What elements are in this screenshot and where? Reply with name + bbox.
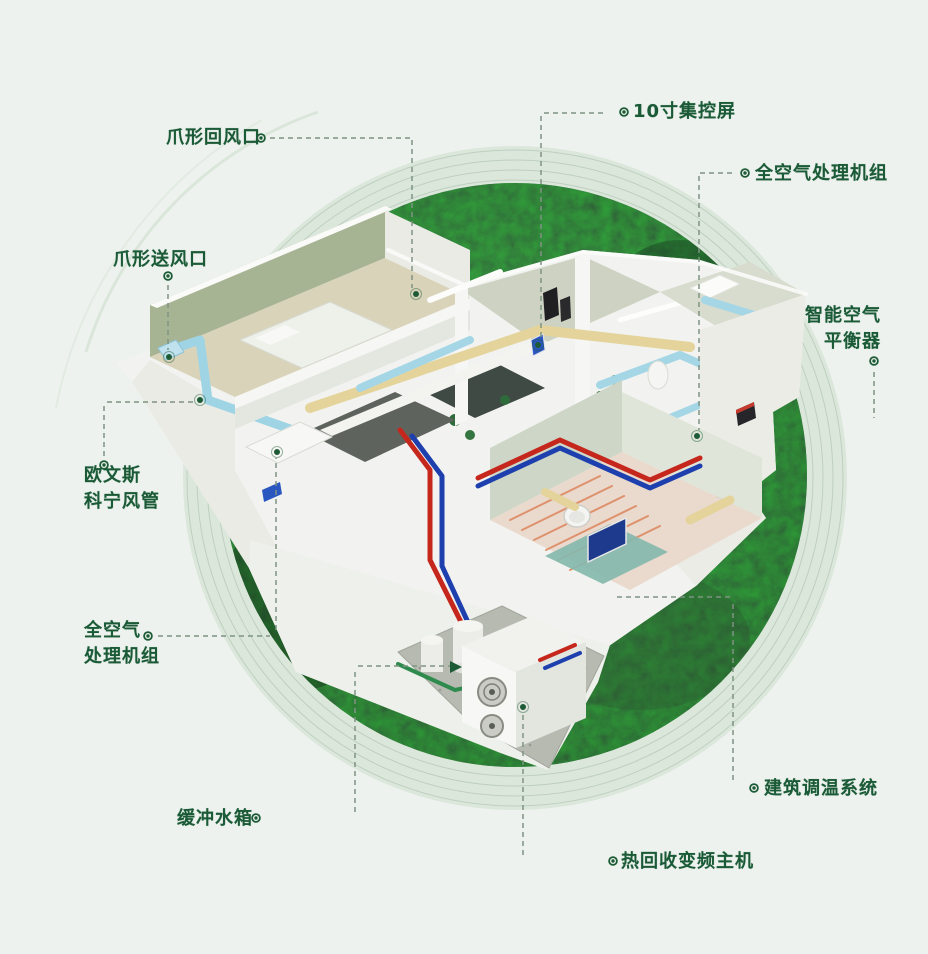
bullseye-icon	[619, 107, 629, 117]
label-owens-corning-duct: 欧文斯 科宁风管	[84, 463, 160, 515]
label-buffer-water-tank: 缓冲水箱	[177, 806, 253, 832]
bullseye-icon	[869, 356, 879, 366]
bullseye-icon	[749, 783, 759, 793]
bullseye-icon	[740, 168, 750, 178]
round-window	[648, 361, 668, 389]
label-claw-return-vent: 爪形回风口	[166, 125, 261, 151]
infographic-canvas: 爪形回风口 10寸集控屏 全空气处理机组 智能空气 平衡器 爪形送风口 欧文斯 …	[0, 0, 928, 954]
label-ahu-left: 全空气 处理机组	[84, 618, 160, 670]
label-heat-recovery-unit: 热回收变频主机	[621, 849, 754, 875]
bullseye-icon	[608, 856, 618, 866]
label-control-screen: 10寸集控屏	[633, 99, 736, 125]
label-claw-supply-vent: 爪形送风口	[113, 247, 208, 273]
label-ahu-top-right: 全空气处理机组	[755, 161, 888, 187]
label-smart-air-balancer: 智能空气 平衡器	[801, 303, 881, 355]
label-building-temp-system: 建筑调温系统	[764, 776, 878, 802]
